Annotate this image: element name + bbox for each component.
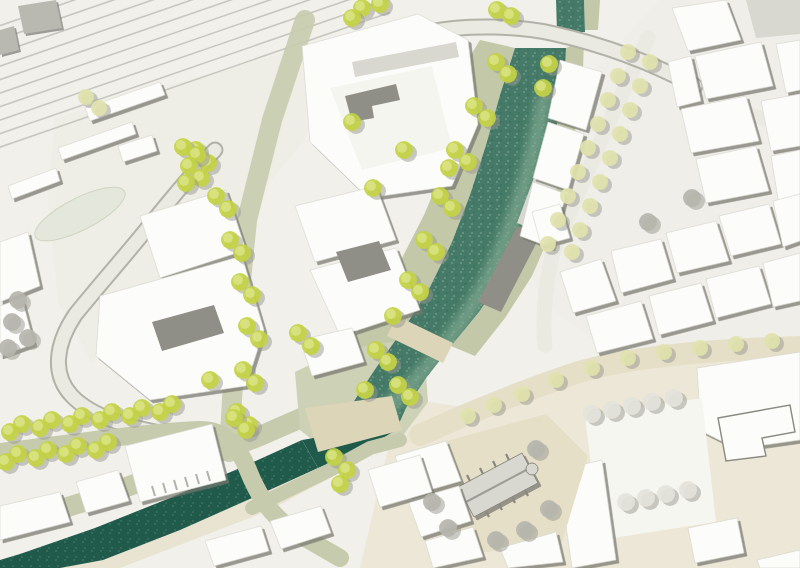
tree-icon [637,489,655,507]
tree-highlight [182,159,192,169]
tree-highlight [358,383,368,393]
tree-highlight [345,115,355,125]
tree-highlight [101,435,111,445]
tree-icon [580,140,596,156]
tree-icon [592,174,608,190]
tree-highlight [165,397,175,407]
tree-icon [423,493,441,511]
tree-icon [78,89,94,105]
tree-highlight [355,1,365,11]
tree-highlight [461,155,471,165]
tree-icon [679,481,697,499]
tree-highlight [245,288,255,298]
tree-highlight [223,233,233,243]
tree-highlight [442,161,452,171]
tree-icon [583,405,601,423]
tree-highlight [340,463,350,473]
tree-highlight [252,332,262,342]
tree-highlight [29,451,39,461]
tree-icon [514,386,530,402]
tree-icon [603,401,621,419]
upstream-east-bank [584,0,600,30]
tree-icon [487,531,505,549]
tree-highlight [235,246,245,256]
tree-icon [692,340,708,356]
tree-icon [527,440,545,458]
tree-highlight [45,413,55,423]
tree-highlight [429,245,439,255]
tree-highlight [433,189,443,199]
tree-highlight [209,189,219,199]
tree-highlight [239,423,249,433]
tree-highlight [15,417,25,427]
tree-icon [91,100,107,116]
tree-highlight [480,111,490,121]
tree-highlight [33,421,43,431]
tree-icon [570,164,586,180]
tree-highlight [542,57,552,67]
tree-icon [657,485,675,503]
tree-icon [642,54,658,70]
tree-icon [623,397,641,415]
tree-icon [582,198,598,214]
tree-highlight [135,401,145,411]
tree-highlight [105,405,115,415]
tree-icon [460,408,476,424]
tree-icon [639,213,657,231]
tree-highlight [381,355,391,365]
tree-icon [643,393,661,411]
tree-highlight [445,201,455,211]
tree-highlight [227,411,237,421]
site-plan-map [0,0,800,568]
tree-icon [728,336,744,352]
tree-highlight [345,11,355,21]
tree-icon [610,68,626,84]
tree-highlight [448,143,458,153]
tree-icon [560,188,576,204]
tree-highlight [41,443,51,453]
tree-highlight [93,413,103,423]
tree-highlight [240,319,250,329]
tree-highlight [203,373,213,383]
tree-icon [683,189,701,207]
tree-highlight [75,409,85,419]
tree-highlight [190,148,200,158]
tree-highlight [233,275,243,285]
tree-icon [620,350,636,366]
tree-icon [622,102,638,118]
tree-highlight [291,326,301,336]
tree-highlight [489,55,499,65]
tree-icon [3,313,21,331]
tree-icon [764,333,780,349]
building [18,0,62,34]
tree-highlight [327,450,337,460]
tree-highlight [369,343,379,353]
tree-highlight [391,378,401,388]
tree-highlight [11,447,21,457]
tree-icon [620,44,636,60]
tree-highlight [248,376,258,386]
tree-icon [590,116,606,132]
tree-highlight [366,181,376,191]
tree-highlight [397,143,407,153]
tree-highlight [59,447,69,457]
tree-highlight [179,176,189,186]
tree-highlight [123,409,133,419]
tree-icon [548,372,564,388]
church-apse [526,463,538,475]
tree-highlight [176,140,186,150]
tree-highlight [333,477,343,487]
tree-icon [632,78,648,94]
tree-highlight [403,390,413,400]
tree-icon [602,150,618,166]
site-plan-svg [0,0,800,568]
tree-highlight [153,405,163,415]
tree-highlight [71,439,81,449]
tree-highlight [236,363,246,373]
tree-icon [439,519,457,537]
tree-highlight [413,285,423,295]
tree-icon [564,244,580,260]
tree-icon [617,493,635,511]
tree-icon [19,329,37,347]
tree-highlight [386,309,396,319]
tree-highlight [490,3,500,13]
tree-icon [9,291,27,309]
tree-icon [540,236,556,252]
tree-icon [665,389,683,407]
tree-highlight [63,417,73,427]
tree-highlight [89,443,99,453]
tree-icon [516,521,534,539]
tree-highlight [504,9,514,19]
tree-icon [584,360,600,376]
tree-highlight [417,233,427,243]
tree-highlight [401,273,411,283]
tree-icon [486,397,502,413]
tree-highlight [3,425,13,435]
tree-highlight [536,81,546,91]
tree-highlight [304,339,314,349]
tree-icon [550,212,566,228]
tree-icon [656,344,672,360]
tree-icon [600,92,616,108]
tree-icon [572,222,588,238]
tree-highlight [467,99,477,109]
tree-icon [612,126,628,142]
tree-highlight [501,67,511,77]
tree-icon [540,500,558,518]
tree-highlight [221,202,231,212]
